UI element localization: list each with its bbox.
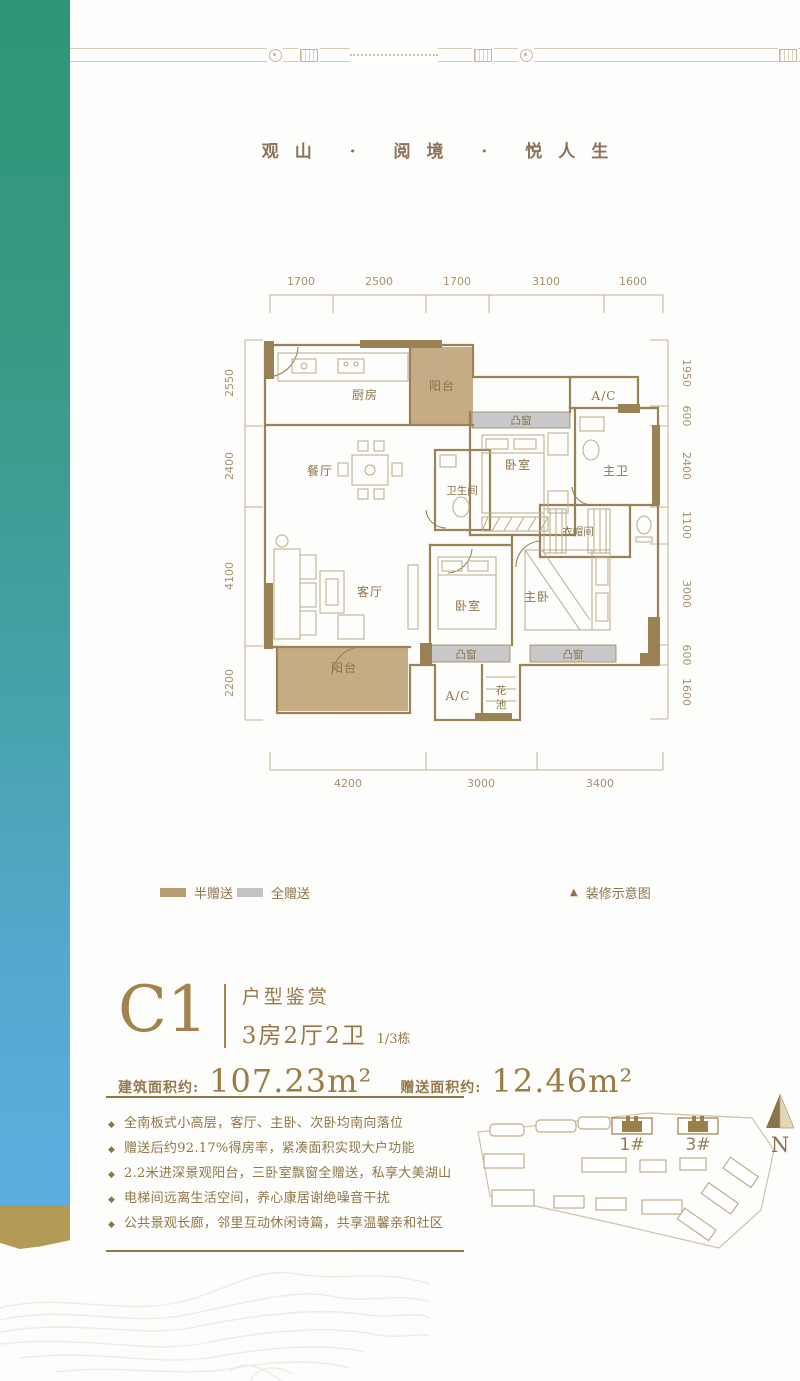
dimension-label: 1950 [680, 359, 693, 387]
dimension-label: 2550 [223, 369, 236, 397]
feature-list: ◆ 全南板式小高层，客厅、主卧、次卧均南向落位 ◆ 赠送后约92.17%得房率，… [106, 1096, 464, 1252]
dimension-label: 1600 [619, 275, 647, 288]
built-area-value: 107.23m² [209, 1062, 372, 1100]
diamond-bullet-icon: ◆ [108, 1141, 124, 1158]
compass-triangle-light [780, 1094, 794, 1128]
diamond-bullet-icon: ◆ [108, 1166, 124, 1183]
dimension-label: 4100 [223, 562, 236, 590]
diamond-bullet-icon: ◆ [108, 1216, 124, 1233]
room-label-balcony-bottom: 阳台 [331, 660, 357, 675]
dotted-ornament [350, 48, 438, 62]
room-label-bay-top: 凸窗 [511, 414, 532, 427]
room-label-ac-top: A/C [591, 389, 617, 403]
decorative-border [70, 48, 800, 62]
room-label-bedroom-top: 卧室 [505, 457, 531, 472]
highlighted-building-3: 3# [678, 1116, 718, 1155]
feature-item: ◆ 赠送后约92.17%得房率，紧凑面积实现大户功能 [108, 1141, 462, 1158]
legend-note: ▲ 装修示意图 [570, 883, 651, 902]
dimension-label: 2400 [223, 452, 236, 480]
legend-full-gift: 全赠送 [237, 883, 310, 902]
room-label-flower-bed: 池 [496, 698, 507, 711]
legend-half-gift-label: 半赠送 [194, 883, 233, 902]
building-3-label: 3# [685, 1135, 710, 1155]
north-label: N [771, 1133, 789, 1157]
dimension-label: 600 [680, 406, 693, 427]
half-gift-swatch-icon [160, 888, 186, 897]
unit-code: C1 [118, 980, 208, 1050]
room-label-living: 客厅 [357, 584, 383, 599]
room-label-master-bedroom: 主卧 [524, 590, 550, 604]
feature-item: ◆ 电梯间远离生活空间，养心康居谢绝噪音干扰 [108, 1191, 462, 1208]
room-label-bathroom: 卫生间 [446, 484, 478, 497]
poster-page: 观山 · 阅境 · 悦人生 1700 2500 1700 3100 1600 [0, 0, 800, 1381]
building-1-label: 1# [619, 1135, 644, 1155]
edge-ornament-icon [778, 48, 798, 62]
legend-half-gift: 半赠送 [160, 883, 233, 902]
room-label-balcony-top: 阳台 [429, 378, 455, 393]
knot-icon [472, 48, 494, 62]
medallion-icon [267, 48, 283, 62]
dimension-label: 3000 [680, 580, 693, 608]
legend-note-label: 装修示意图 [586, 883, 651, 902]
dimension-label: 2200 [223, 669, 236, 697]
dimension-label: 2500 [365, 275, 393, 288]
dimension-label: 3400 [586, 777, 614, 790]
contour-lines [0, 1252, 430, 1381]
unit-info: C1 户型鉴赏 3房2厅2卫 1/3栋 建筑面积约: 107.23m² 赠送面积… [118, 980, 738, 1100]
dimension-label: 3100 [532, 275, 560, 288]
knot-icon [298, 48, 320, 62]
site-map: 1# 3# N [462, 1088, 794, 1266]
left-color-band [0, 0, 70, 1205]
unit-subtitle: 户型鉴赏 [242, 982, 411, 1009]
feature-item: ◆ 2.2米进深景观阳台，三卧室飘窗全赠送，私享大美湖山 [108, 1166, 462, 1183]
page-title: 观山 · 阅境 · 悦人生 [70, 137, 800, 162]
room-label-master-bath: 主卫 [603, 464, 629, 478]
dimension-label: 4200 [334, 777, 362, 790]
dimensions-bottom: 4200 3000 3400 [270, 752, 663, 790]
dimension-label: 1600 [680, 678, 693, 706]
unit-layout: 3房2厅2卫 [242, 1016, 367, 1050]
diamond-bullet-icon: ◆ [108, 1116, 124, 1133]
room-label-kitchen: 厨房 [352, 387, 378, 402]
feature-item: ◆ 全南板式小高层，客厅、主卧、次卧均南向落位 [108, 1116, 462, 1133]
dimension-label: 600 [680, 645, 693, 666]
room-label-closet: 衣帽间 [562, 525, 594, 538]
dimensions-top: 1700 2500 1700 3100 1600 [270, 275, 663, 313]
dimensions-left: 2550 2400 4100 2200 [223, 340, 263, 720]
feature-item: ◆ 公共景观长廊，邻里互动休闲诗篇，共享温馨亲和社区 [108, 1216, 462, 1233]
full-gift-swatch-icon [237, 888, 263, 897]
highlighted-building-1: 1# [612, 1116, 652, 1155]
room-label-bedroom-bottom: 卧室 [455, 598, 481, 613]
medallion-icon [518, 48, 534, 62]
built-area-label: 建筑面积约: [118, 1077, 199, 1097]
dimension-label: 2400 [680, 452, 693, 480]
dimension-label: 1700 [287, 275, 315, 288]
north-compass: N [766, 1094, 794, 1157]
divider [224, 984, 226, 1048]
room-label-bay-bottom-right: 凸窗 [563, 648, 584, 661]
left-band-gold-tip [0, 1205, 70, 1249]
floor-plan: 1700 2500 1700 3100 1600 4200 3000 3400 … [220, 265, 710, 805]
room-label-dining: 餐厅 [307, 463, 333, 478]
room-label-ac-bottom: A/C [445, 689, 471, 703]
diamond-bullet-icon: ◆ [108, 1191, 124, 1208]
dimension-label: 1700 [443, 275, 471, 288]
triangle-icon: ▲ [570, 887, 578, 898]
compass-triangle-dark [766, 1094, 780, 1128]
room-label-bay-bottom-left: 凸窗 [456, 648, 477, 661]
room-label-flower-bed: 花 [496, 684, 507, 697]
dimension-label: 1100 [680, 511, 693, 539]
legend-full-gift-label: 全赠送 [271, 883, 310, 902]
dimension-label: 3000 [467, 777, 495, 790]
unit-building: 1/3栋 [377, 1028, 411, 1047]
